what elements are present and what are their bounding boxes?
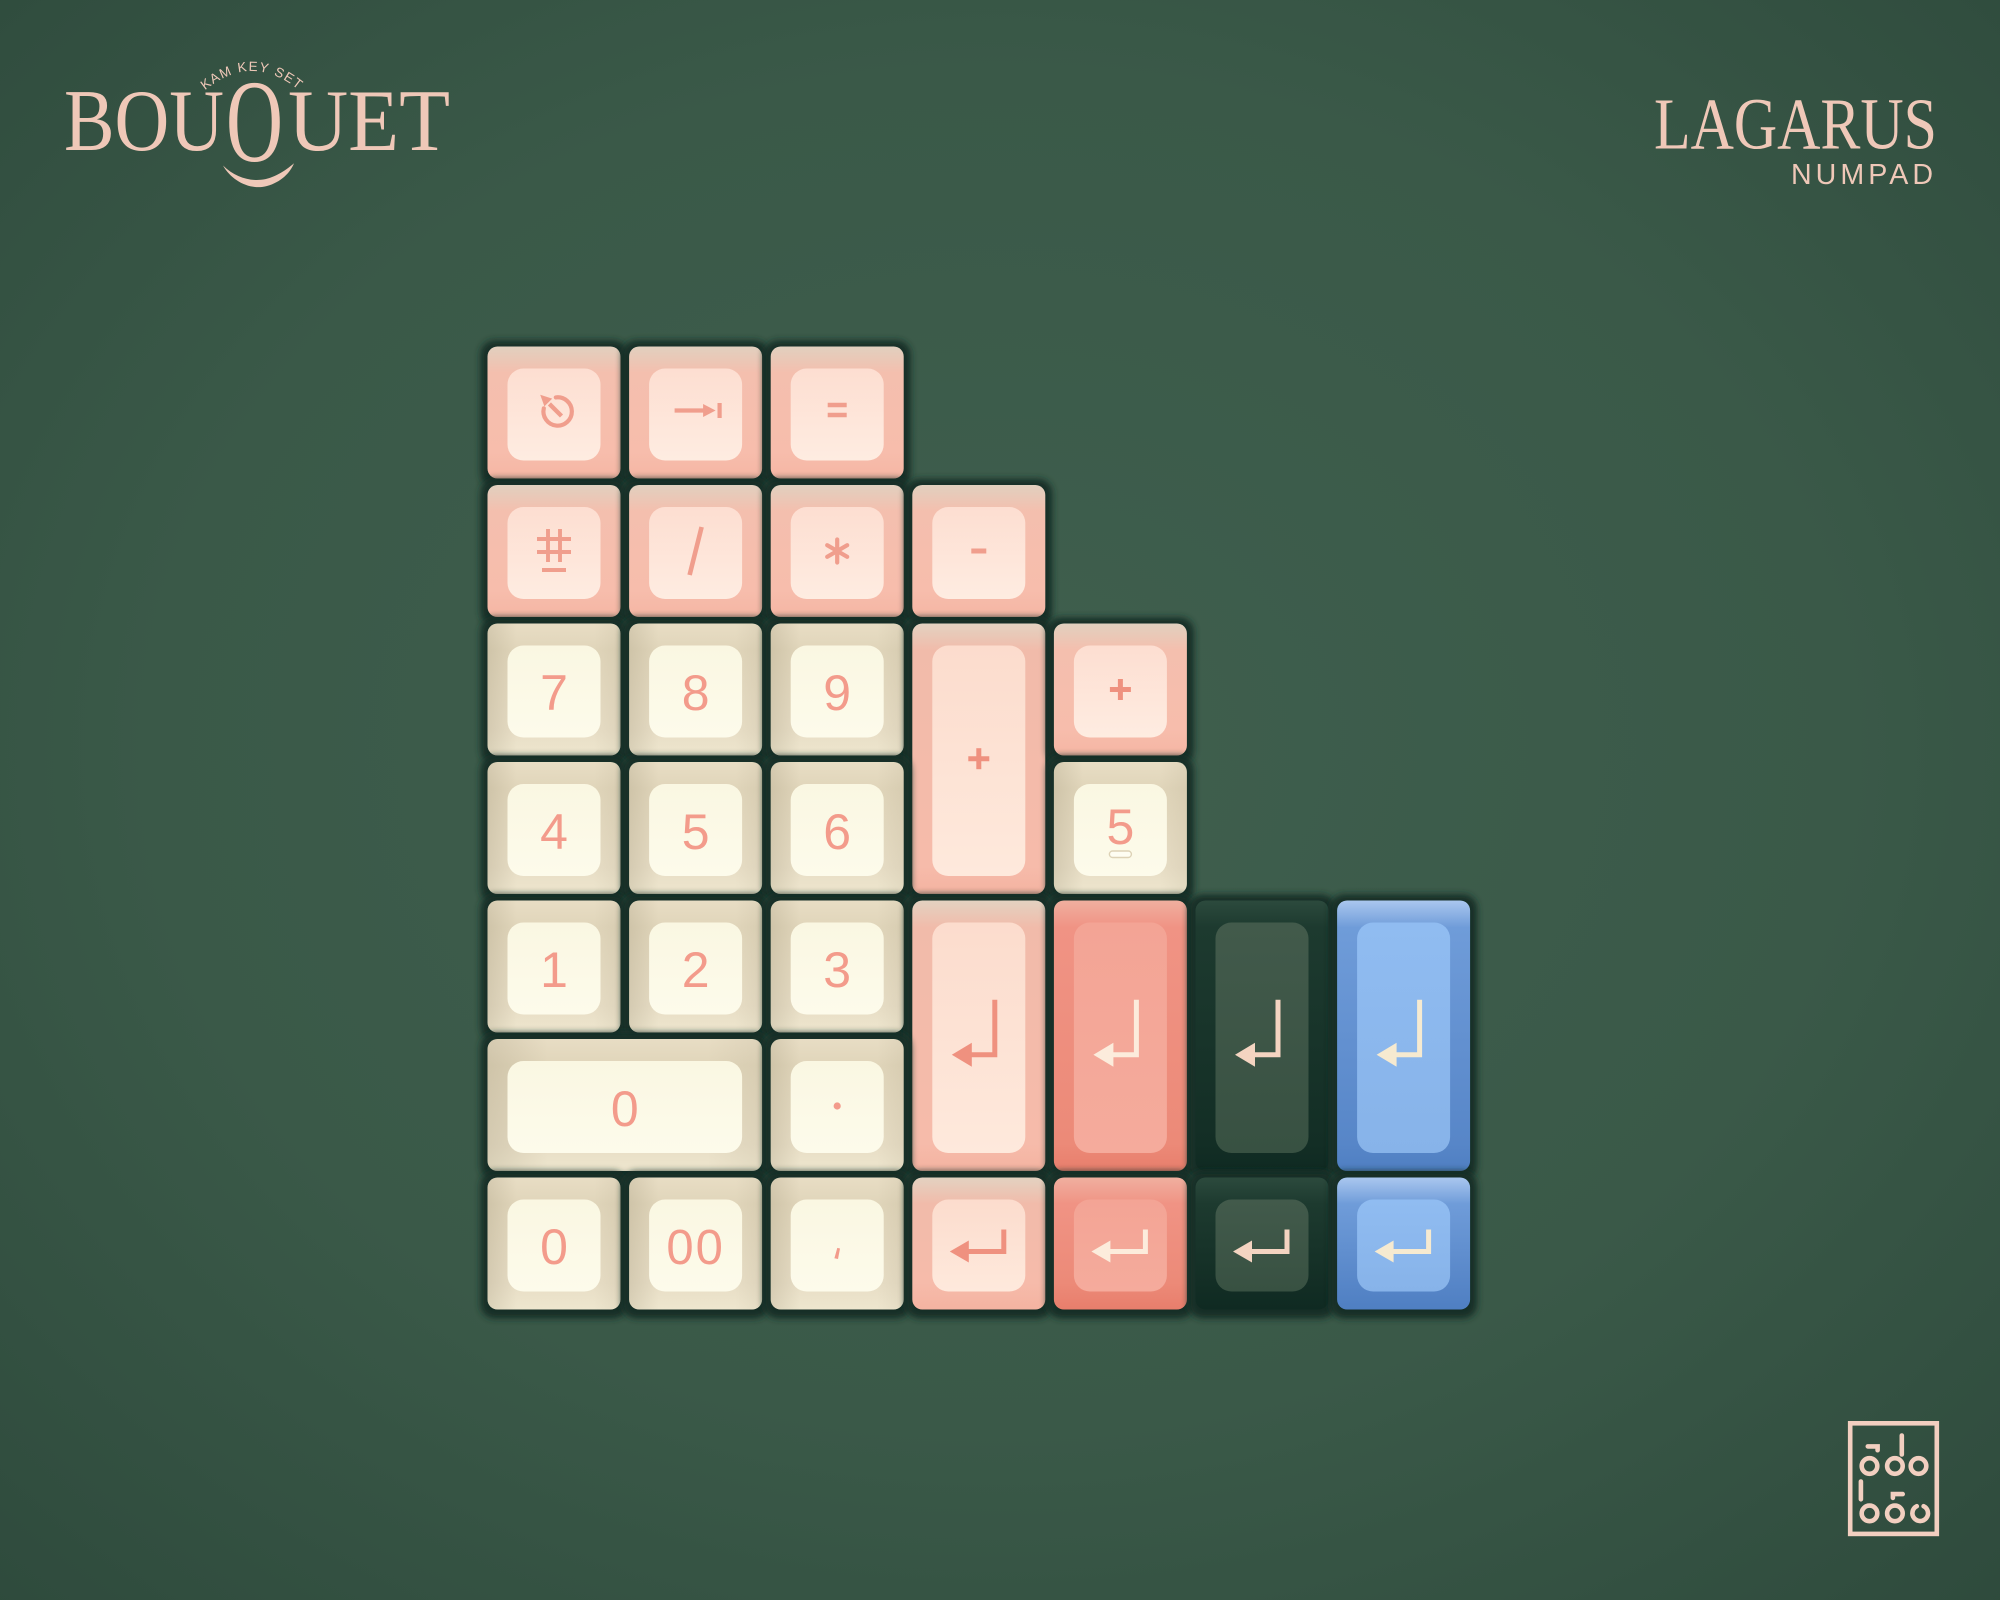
svg-text:5: 5 — [1106, 799, 1134, 855]
svg-text:NUMPAD: NUMPAD — [1791, 159, 1937, 191]
svg-text:2: 2 — [682, 942, 710, 998]
svg-text:UET: UET — [288, 73, 450, 170]
svg-text:6: 6 — [823, 804, 851, 860]
svg-text:00: 00 — [666, 1221, 725, 1275]
svg-text:3: 3 — [823, 942, 851, 998]
svg-text:O: O — [226, 56, 283, 187]
svg-text:7: 7 — [540, 665, 568, 721]
svg-text:9: 9 — [823, 665, 851, 721]
svg-text:LAGARUS: LAGARUS — [1654, 84, 1937, 165]
svg-text:8: 8 — [682, 665, 710, 721]
svg-text:BOU: BOU — [64, 73, 224, 170]
svg-text:5: 5 — [682, 804, 710, 860]
svg-text:0: 0 — [540, 1219, 568, 1275]
svg-text:0: 0 — [611, 1081, 639, 1137]
svg-text:1: 1 — [540, 942, 568, 998]
svg-text:4: 4 — [540, 804, 568, 860]
